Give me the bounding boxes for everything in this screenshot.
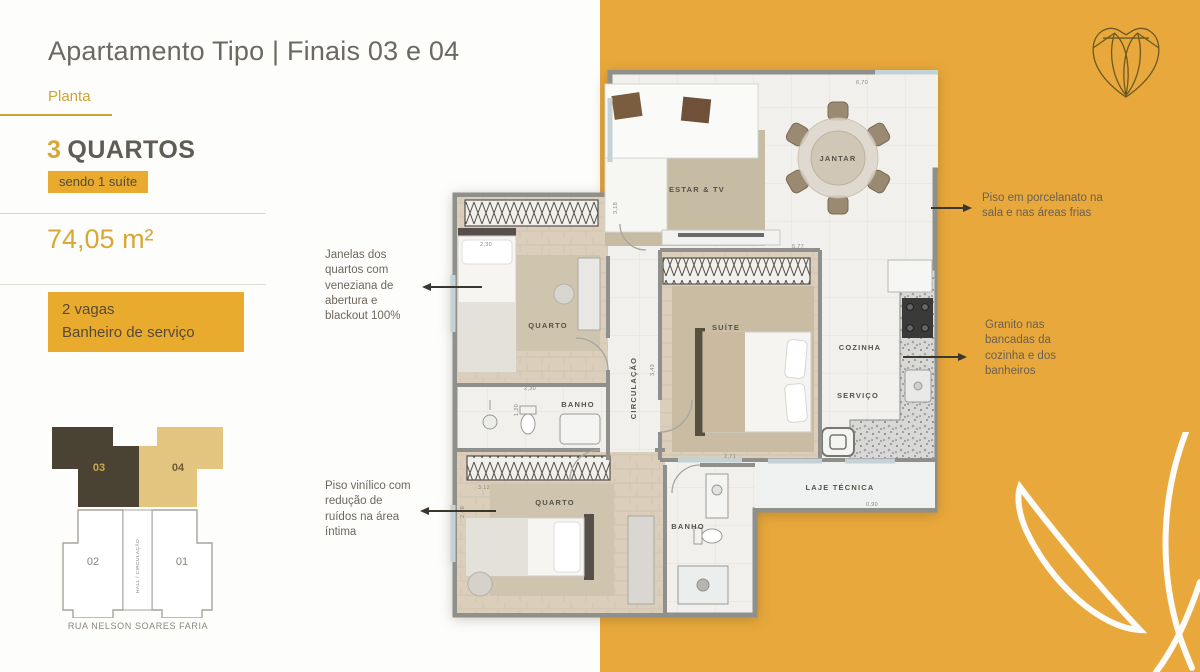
wardrobe-quarto2 (467, 456, 610, 480)
features-badge: 2 vagas Banheiro de serviço (48, 292, 244, 352)
plan-subtitle: Planta (48, 88, 91, 105)
quarto1-chair (554, 284, 574, 304)
wardrobe-quarto1 (465, 200, 598, 226)
floor-plan: ESTAR & TV JANTAR QUARTO SUÍTE CIRCULAÇÃ… (450, 70, 938, 622)
stove (902, 298, 933, 338)
room-label-quarto2: QUARTO (535, 498, 575, 507)
key-plan-unit-01-label: 01 (176, 556, 188, 568)
wardrobe-suite (663, 258, 810, 284)
street-label: RUA NELSON SOARES FARIA (38, 621, 238, 631)
dim-246: 2,46 (460, 506, 466, 518)
bedrooms-heading: 3QUARTOS (47, 136, 195, 165)
annotation-arrow-windows (430, 286, 482, 288)
quarto2-wardrobe-side (628, 516, 654, 604)
laundry-tank (822, 428, 854, 456)
room-label-servico: SERVIÇO (837, 391, 879, 400)
dim-271: 2,71 (724, 454, 736, 460)
key-plan-unit-04-label: 04 (172, 462, 185, 474)
annotation-arrow-granite (903, 356, 959, 358)
room-label-circulacao: CIRCULAÇÃO (629, 357, 638, 419)
area-value: 74,05 m² (47, 224, 154, 255)
dim-120: 1,20 (514, 404, 520, 416)
dim-312: 3,12 (478, 485, 490, 491)
subtitle-underline (0, 114, 112, 116)
tv-rack (662, 230, 780, 245)
note-porcelain-floor: Piso em porcelanato na sala e nas áreas … (982, 191, 1132, 222)
bedrooms-label: QUARTOS (67, 136, 195, 164)
note-granite: Granito nas bancadas da cozinha e dos ba… (985, 318, 1105, 379)
annotation-arrow-vinyl (428, 510, 496, 512)
bedrooms-count: 3 (47, 136, 61, 164)
suite-bed (695, 328, 811, 436)
dim-230b: 2,30 (524, 386, 536, 392)
divider (0, 213, 266, 214)
quarto1-bed (458, 228, 516, 372)
leaf-decoration-icon (990, 432, 1200, 672)
lotus-logo-icon (1085, 15, 1167, 107)
kitchen-sink (905, 370, 931, 402)
dim-230a: 2,30 (480, 242, 492, 248)
key-plan-hall-label: HALL / CIRCULAÇÃO (134, 539, 141, 593)
room-label-jantar: JANTAR (819, 154, 856, 163)
fridge (888, 260, 932, 292)
dim-577: 5,77 (792, 244, 804, 250)
room-label-cozinha: COZINHA (839, 343, 882, 352)
key-plan-unit-02-label: 02 (87, 556, 99, 568)
key-plan-diagram: 03 04 02 01 HALL / CIRCULAÇÃO (35, 413, 240, 618)
dim-670: 6,70 (856, 80, 868, 86)
room-label-banho2: BANHO (671, 522, 705, 531)
quarto2-armchair (468, 572, 492, 596)
suite-badge: sendo 1 suíte (48, 171, 148, 193)
dim-318: 3,18 (613, 202, 619, 214)
room-label-estar: ESTAR & TV (669, 185, 725, 194)
room-label-suite: SUÍTE (712, 323, 740, 332)
dim-090: 0,90 (866, 502, 878, 508)
quarto2-bed (466, 514, 594, 580)
page-title: Apartamento Tipo | Finais 03 e 04 (48, 36, 459, 67)
dim-343: 3,43 (650, 364, 656, 376)
note-windows: Janelas dos quartos com veneziana de abe… (325, 248, 435, 324)
quarto1-wardrobe-side (578, 258, 600, 330)
annotation-arrow-porcelain (931, 207, 964, 209)
room-label-quarto1: QUARTO (528, 321, 568, 330)
key-plan-unit-03-label: 03 (93, 462, 105, 474)
room-label-banho1: BANHO (561, 400, 595, 409)
divider (0, 284, 266, 285)
room-label-laje: LAJE TÉCNICA (806, 483, 875, 492)
